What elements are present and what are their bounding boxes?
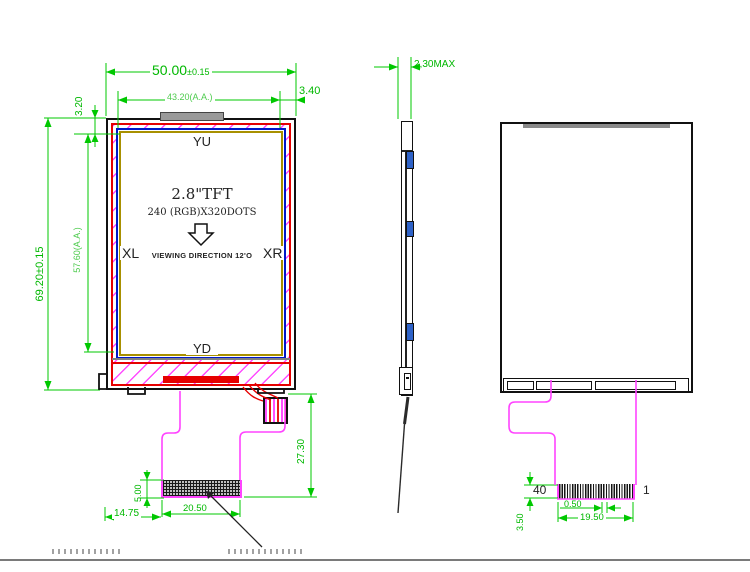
back-bottom-cell-right — [595, 381, 676, 390]
front-backlight-bar — [163, 376, 239, 383]
front-top-tab — [160, 112, 224, 121]
side-view — [360, 0, 480, 572]
side-tape-1 — [406, 151, 414, 169]
side-tape-3 — [406, 323, 414, 341]
dim-overall-width: 50.00±0.15 — [150, 63, 212, 78]
dim-aa-height: 57.60(A.A.) — [73, 208, 82, 292]
driver-ic-block — [263, 397, 288, 424]
side-tape-2 — [406, 221, 414, 237]
dim-pad-offset: 14.75 — [112, 509, 141, 519]
dim-overall-height: 69.20±0.15 — [35, 232, 46, 316]
cut-off-text-left — [52, 549, 124, 554]
dim-pin-pitch: 0.50 — [564, 500, 582, 509]
lcd-module-drawing-sheet: 50.00±0.15 43.20(A.A.) 3.40 3.20 69.20±0… — [0, 0, 750, 572]
back-fpc-pin-pad — [557, 484, 635, 499]
dim-thickness: 2,30MAX — [414, 60, 455, 70]
front-flex-contact-pad — [161, 480, 242, 498]
dim-overall-width-tol: ±0.15 — [187, 67, 209, 77]
screen-viewing-direction: VIEWING DIRECTION 12'O — [146, 252, 258, 260]
screen-resolution: 240 (RGB)X320DOTS — [138, 208, 266, 218]
label-xl: XL — [120, 246, 141, 260]
pin-number-1: 1 — [641, 484, 652, 496]
dim-pad-width: 20.50 — [183, 504, 207, 514]
label-xr: XR — [261, 246, 284, 260]
back-view — [480, 0, 750, 572]
dim-top-margin: 3.20 — [75, 84, 85, 116]
dim-back-pad-width: 19.50 — [578, 513, 606, 523]
dim-right-margin: 3.40 — [299, 86, 320, 97]
back-bottom-cell-left — [507, 381, 534, 390]
label-yu: YU — [186, 135, 218, 148]
pin-number-40: 40 — [531, 484, 548, 496]
sheet-border-line — [0, 559, 750, 561]
dim-back-pad-height: 3.50 — [516, 503, 525, 531]
front-active-area — [119, 131, 283, 356]
back-outer-frame — [500, 122, 693, 393]
front-bottom-gray-line — [112, 358, 290, 360]
dim-aa-width: 43.20(A.A.) — [165, 93, 215, 102]
back-bottom-cell-mid — [536, 381, 592, 390]
screen-title: 2.8"TFT — [150, 187, 254, 202]
label-yd: YD — [186, 342, 218, 355]
dim-overall-width-value: 50.00 — [152, 62, 187, 78]
side-connector-tick — [406, 377, 409, 379]
side-connector-block — [404, 373, 411, 390]
dim-pad-height: 5.00 — [134, 474, 143, 502]
back-top-gray-bar — [523, 124, 670, 128]
cut-off-text-right — [228, 549, 306, 554]
front-bottom-red-line — [112, 362, 290, 364]
dim-flex-length: 27.30 — [297, 402, 307, 464]
